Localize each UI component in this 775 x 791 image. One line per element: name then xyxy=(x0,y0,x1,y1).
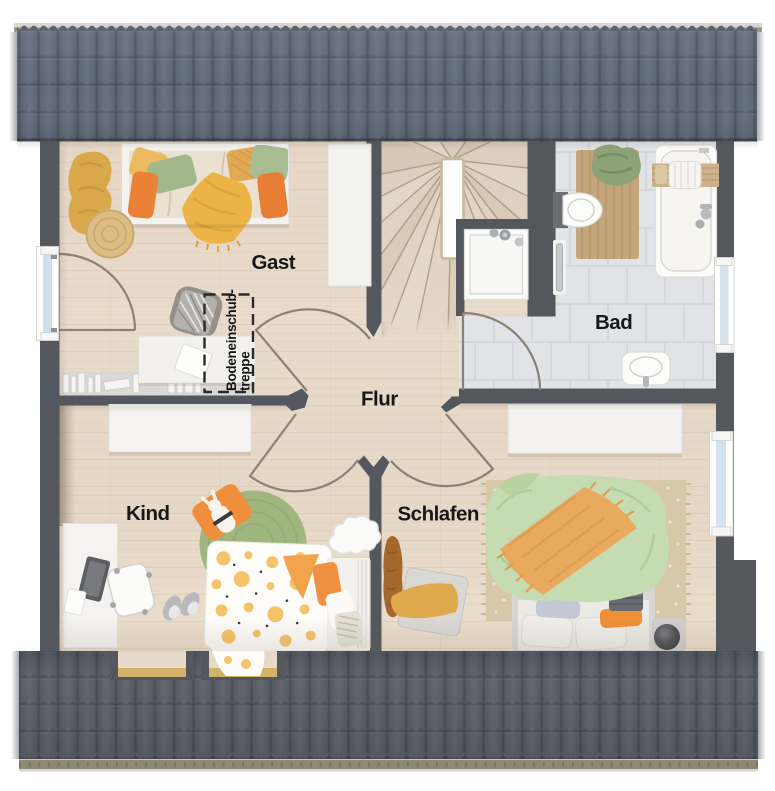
svg-text:treppe: treppe xyxy=(238,351,253,391)
svg-text:Kind: Kind xyxy=(126,502,170,525)
svg-text:Flur: Flur xyxy=(361,388,398,411)
svg-text:Gast: Gast xyxy=(252,251,296,274)
svg-text:Schlafen: Schlafen xyxy=(398,503,479,526)
svg-text:Bad: Bad xyxy=(595,311,632,334)
